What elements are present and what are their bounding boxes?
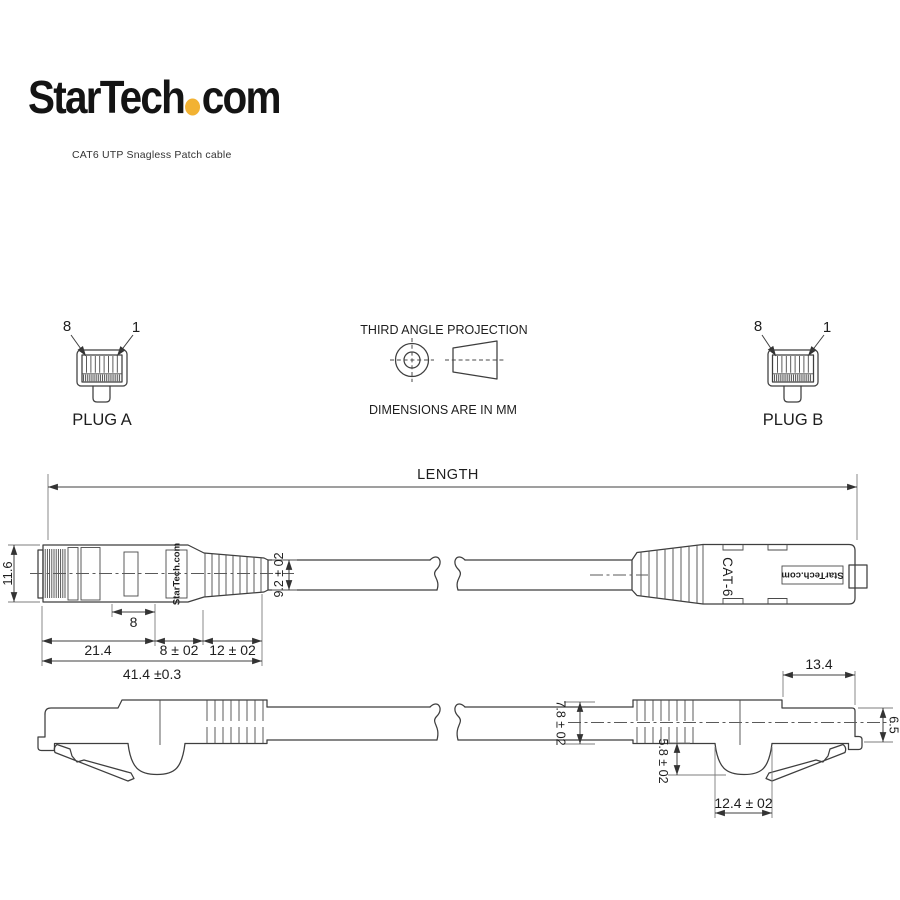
projection-crosshair [390, 338, 434, 382]
drawing-canvas: StarTechcom CAT6 UTP Snagless Patch cabl… [0, 0, 900, 900]
bottom-view-cable [267, 704, 633, 740]
side-view-cable [268, 557, 632, 590]
plug-a-pin8-leader-arrow [71, 335, 86, 356]
plug-a-pins [82, 356, 122, 374]
bottom-right-latch-tab [849, 737, 863, 750]
right-boot-ribs [641, 545, 697, 604]
plug-a-latch-tab [93, 386, 110, 402]
technical-drawing: 8 1 PLUG A 8 1 PLUG B THIRD ANGLE [0, 0, 900, 900]
latch-depth-dimension-text: 5.8 ± 02 [656, 738, 670, 783]
plug-height-dimension-text: 11.6 [0, 561, 15, 585]
latch-opening-dimension-text: 12.4 ± 02 [714, 795, 772, 811]
plug-a-front-view: 8 1 PLUG A [63, 318, 140, 429]
bottom-cable-dia-dimension-text: 7.8 ± 02 [553, 700, 567, 745]
left-plug-nose [38, 550, 43, 598]
units-note: DIMENSIONS ARE IN MM [369, 403, 517, 417]
body-length-dimension-text: 21.4 [84, 642, 111, 658]
left-boot-ribs [205, 554, 261, 597]
cable-bottom-break-symbol-2 [455, 704, 465, 740]
contact-length-dimension-text: 8 [130, 614, 138, 630]
cable-bottom-break-symbol-1 [430, 704, 440, 740]
cable-bottom-segment-1 [267, 707, 437, 740]
plug-b-contact-hatch [775, 375, 811, 382]
plug-b-pin8-label: 8 [754, 318, 762, 335]
plug-b-title: PLUG B [763, 411, 824, 429]
overall-length-dimension-text: 41.4 ±0.3 [123, 666, 181, 682]
cable-bottom-segment-2 [458, 707, 633, 740]
third-angle-projection-symbol: THIRD ANGLE PROJECTION DIMENSIONS ARE IN… [360, 323, 527, 417]
boot-length-dimension-text: 12 ± 02 [209, 642, 256, 658]
latch-length-dimension-text: 13.4 [805, 656, 832, 672]
length-extension-lines [48, 474, 857, 540]
plug-b-pins [773, 356, 813, 374]
projection-title: THIRD ANGLE PROJECTION [360, 323, 527, 337]
bottom-right-boot-hump [715, 744, 772, 775]
right-plug-nose [849, 565, 867, 588]
cable-break-symbol-1 [430, 557, 440, 590]
bottom-left-top-edge [45, 700, 267, 714]
plug-b-front-view: 8 1 PLUG B [754, 318, 831, 429]
bottom-right-top-edge [633, 700, 855, 737]
cable-top-segment-2 [458, 560, 632, 590]
nose-height-dimension-text: 6.5 [886, 716, 900, 733]
collar-length-dimension-text: 8 ± 02 [160, 642, 199, 658]
left-plug-window [124, 552, 138, 596]
bottom-right-latch-blade [766, 745, 846, 782]
plug-a-pin1-label: 1 [132, 319, 140, 336]
bottom-right-boot-ribs [637, 700, 693, 744]
bottom-left-boot-hump [128, 744, 185, 775]
plug-b-latch-tab [784, 386, 801, 402]
side-view-right-connector: CAT-6 StarTech.com [590, 545, 867, 605]
bottom-left-lower-edge-and-notch [38, 714, 128, 751]
left-plug-brand-marking: StarTech.com [172, 543, 183, 605]
length-dimension: LENGTH [48, 467, 857, 540]
bottom-left-boot-ribs [207, 700, 263, 744]
side-view-dimensions: 11.6 8 21.4 8 ± 02 12 ± 02 41.4 ±0.3 9.2… [0, 545, 297, 682]
plug-a-title: PLUG A [72, 411, 132, 429]
bottom-view-left-connector [38, 700, 267, 781]
cable-top-segment-1 [268, 560, 437, 590]
length-dimension-text: LENGTH [417, 467, 479, 483]
cable-break-symbol-2 [455, 557, 465, 590]
plug-b-pin1-leader-arrow [808, 335, 824, 356]
cable-dia-dimension-text: 9.2 ± 02 [272, 552, 286, 597]
plug-a-pin1-leader-arrow [117, 335, 133, 356]
right-plug-brand-marking: StarTech.com [781, 569, 843, 580]
latch-length-extension-lines [783, 671, 855, 705]
right-plug-cat6-marking: CAT-6 [720, 557, 735, 597]
plug-a-pin8-label: 8 [63, 318, 71, 335]
bottom-view-dimensions: 7.8 ± 02 5.8 ± 02 12.4 ± 02 13.4 6.5 [553, 656, 900, 818]
plug-b-pin1-label: 1 [823, 319, 831, 336]
bottom-left-latch-blade [54, 745, 134, 782]
plug-a-contact-hatch [84, 375, 120, 382]
plug-b-pin8-leader-arrow [762, 335, 776, 356]
side-view-left-connector: StarTech.com [30, 543, 294, 605]
